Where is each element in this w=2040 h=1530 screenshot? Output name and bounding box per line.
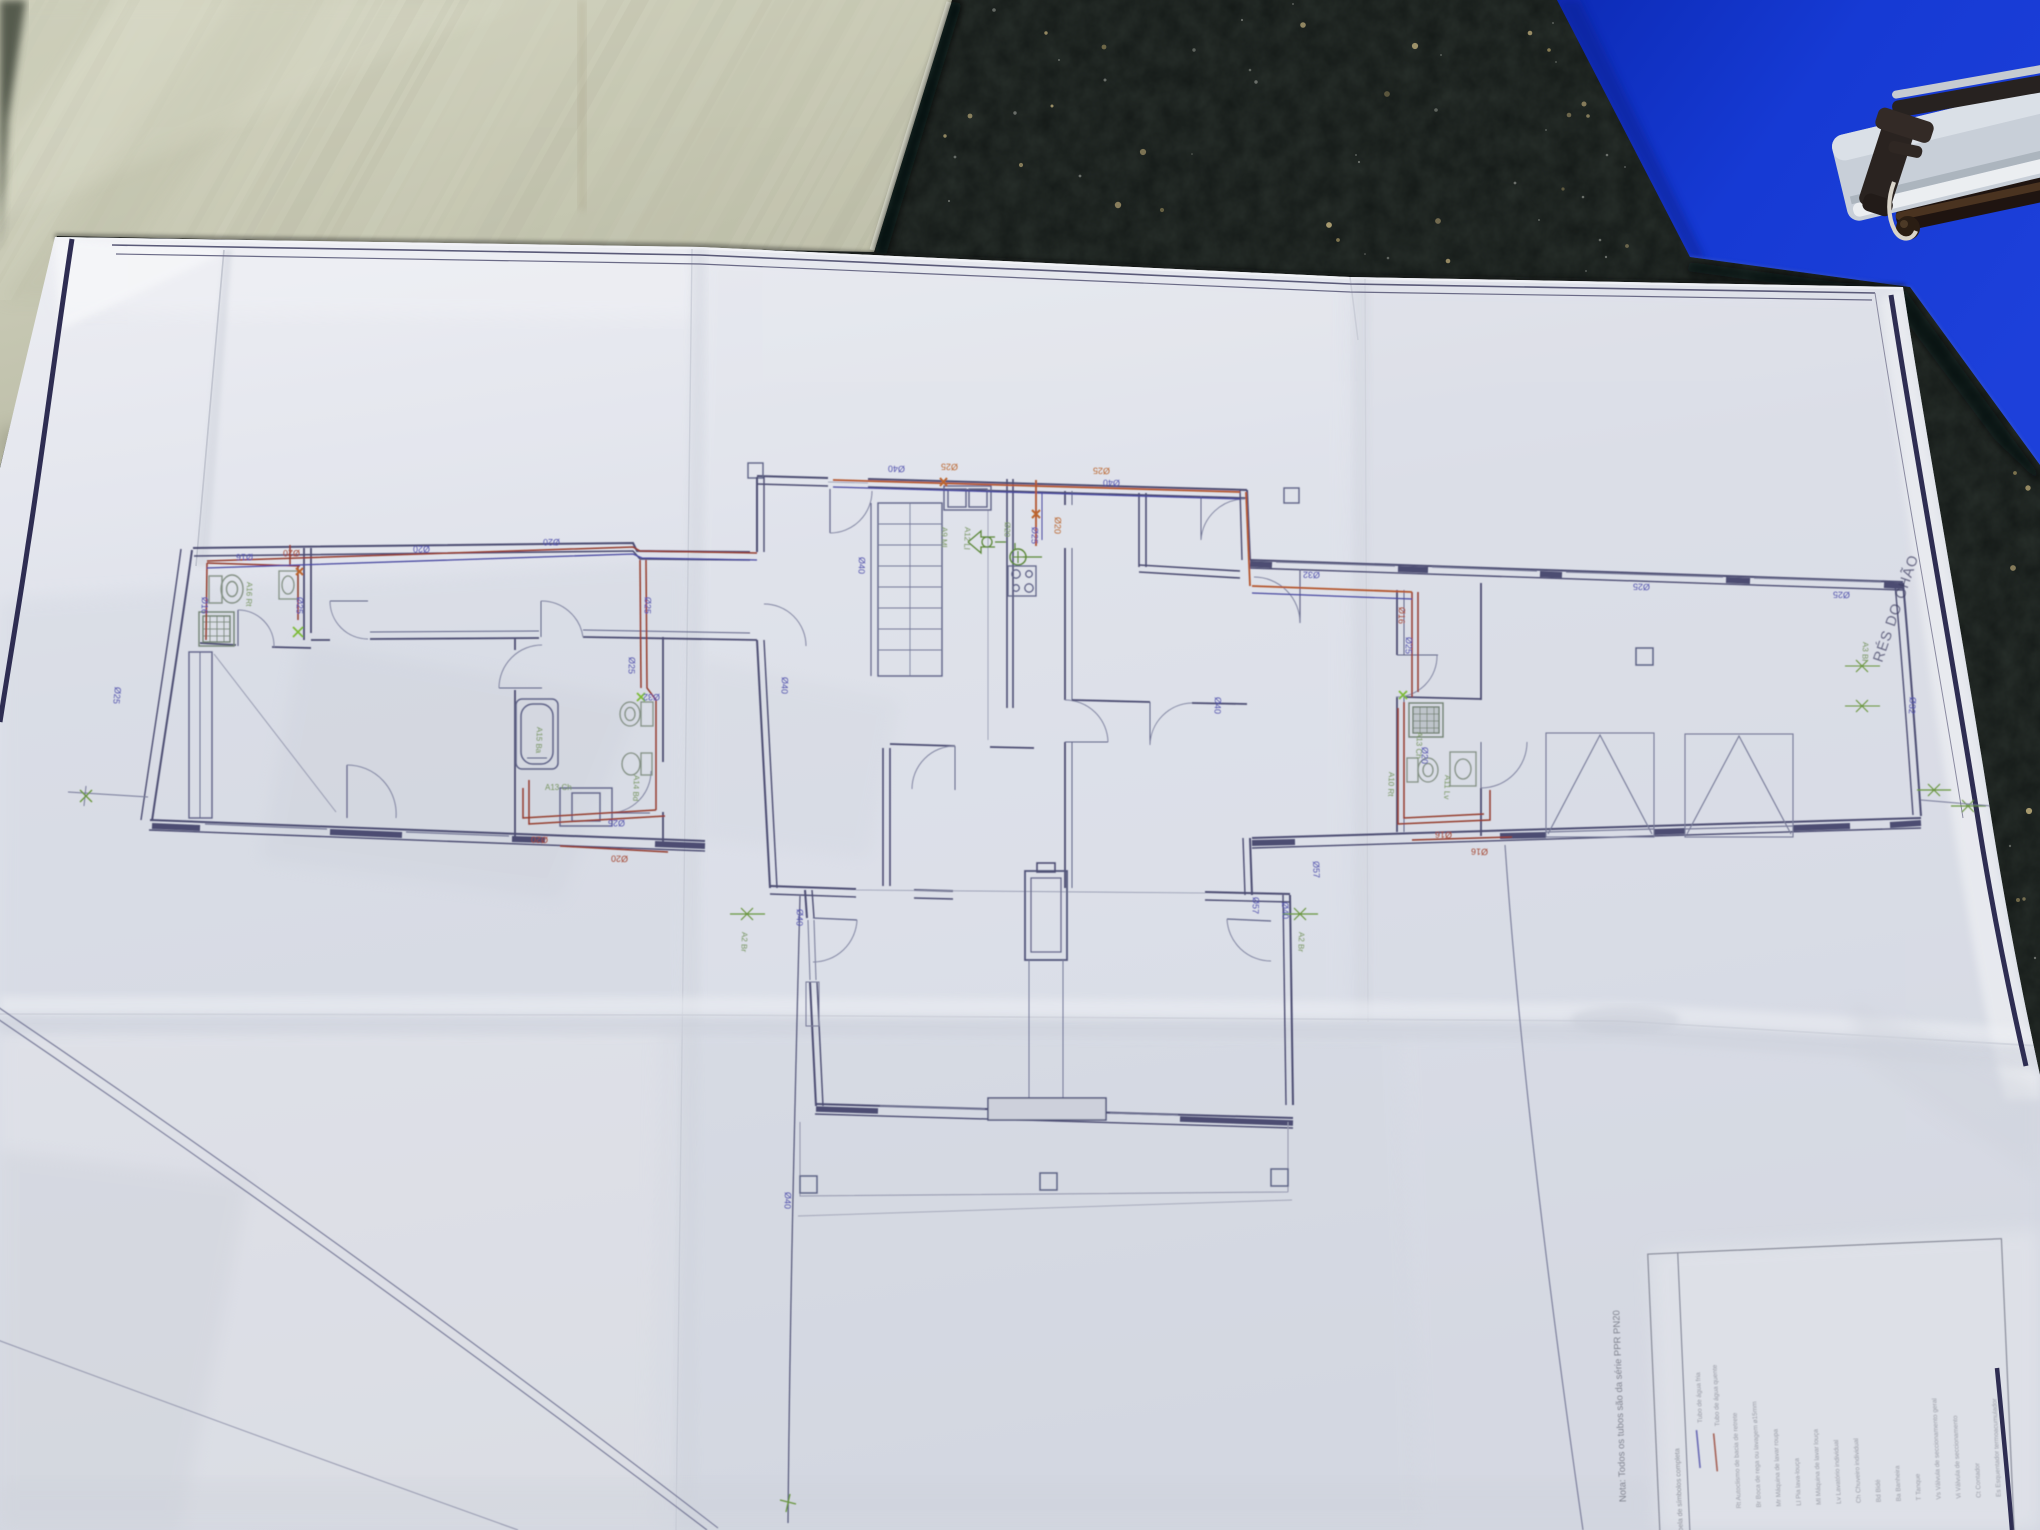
svg-text:Ø20: Ø20 bbox=[1052, 517, 1063, 534]
svg-text:Ø40: Ø40 bbox=[1212, 697, 1223, 714]
svg-text:Ø16: Ø16 bbox=[1435, 829, 1452, 840]
svg-text:Ø25: Ø25 bbox=[1093, 466, 1110, 476]
svg-text:Ø40: Ø40 bbox=[1280, 902, 1291, 919]
svg-text:Ø40: Ø40 bbox=[856, 557, 867, 574]
svg-text:Ø16: Ø16 bbox=[1396, 607, 1407, 624]
svg-text:Ø40: Ø40 bbox=[782, 1192, 793, 1209]
svg-text:Ø57: Ø57 bbox=[1250, 897, 1261, 914]
svg-text:Ø16: Ø16 bbox=[1471, 846, 1488, 857]
svg-text:Ø16: Ø16 bbox=[199, 597, 210, 614]
svg-text:Ø25: Ø25 bbox=[642, 597, 653, 614]
svg-text:A2 Br: A2 Br bbox=[739, 932, 749, 953]
svg-text:T Tanque: T Tanque bbox=[1915, 1473, 1923, 1501]
svg-text:A3 Br: A3 Br bbox=[1860, 642, 1870, 663]
svg-text:Ø25: Ø25 bbox=[1633, 582, 1650, 592]
svg-text:Ø32: Ø32 bbox=[1907, 697, 1918, 715]
svg-text:Ø25: Ø25 bbox=[626, 657, 637, 674]
svg-text:Ø40: Ø40 bbox=[779, 677, 790, 694]
svg-text:Ø20: Ø20 bbox=[413, 544, 430, 554]
svg-text:A16 Rt: A16 Rt bbox=[244, 582, 254, 608]
svg-text:A15 Ba: A15 Ba bbox=[534, 727, 544, 754]
svg-text:Ø25: Ø25 bbox=[294, 597, 305, 614]
svg-text:Ø57: Ø57 bbox=[1311, 861, 1322, 878]
svg-text:A12 Ll: A12 Ll bbox=[962, 527, 972, 550]
svg-text:Ø25: Ø25 bbox=[608, 818, 625, 828]
svg-text:A11 Lv: A11 Lv bbox=[1442, 775, 1452, 800]
svg-text:Ø25: Ø25 bbox=[111, 686, 123, 704]
svg-text:Ø16: Ø16 bbox=[236, 552, 253, 562]
svg-text:Ø25: Ø25 bbox=[1833, 590, 1850, 600]
svg-text:A13 Ch: A13 Ch bbox=[545, 783, 572, 792]
svg-text:Ø25: Ø25 bbox=[1029, 527, 1040, 544]
svg-text:Bd Bidé: Bd Bidé bbox=[1875, 1479, 1883, 1502]
svg-text:Ø32: Ø32 bbox=[643, 692, 660, 702]
svg-text:Ø20: Ø20 bbox=[1002, 522, 1012, 538]
svg-text:Ø20: Ø20 bbox=[531, 834, 548, 845]
svg-text:Ø25: Ø25 bbox=[941, 462, 958, 472]
svg-text:A2 Br: A2 Br bbox=[1296, 932, 1306, 953]
svg-text:A9 Ml: A9 Ml bbox=[939, 527, 949, 548]
svg-text:A14 Bd: A14 Bd bbox=[631, 775, 641, 802]
svg-text:Ø40: Ø40 bbox=[888, 464, 905, 474]
svg-text:Ø40: Ø40 bbox=[794, 909, 805, 926]
svg-text:A10 Rt: A10 Rt bbox=[1386, 772, 1396, 798]
svg-text:Ø20: Ø20 bbox=[543, 537, 560, 547]
svg-text:Ø32: Ø32 bbox=[1303, 570, 1320, 580]
svg-text:Ø40: Ø40 bbox=[1103, 478, 1120, 488]
svg-text:Ø20: Ø20 bbox=[283, 548, 300, 558]
svg-text:Ø20: Ø20 bbox=[611, 853, 628, 864]
svg-text:Ø25: Ø25 bbox=[1403, 637, 1414, 654]
svg-text:A13 Ch: A13 Ch bbox=[1414, 732, 1424, 759]
